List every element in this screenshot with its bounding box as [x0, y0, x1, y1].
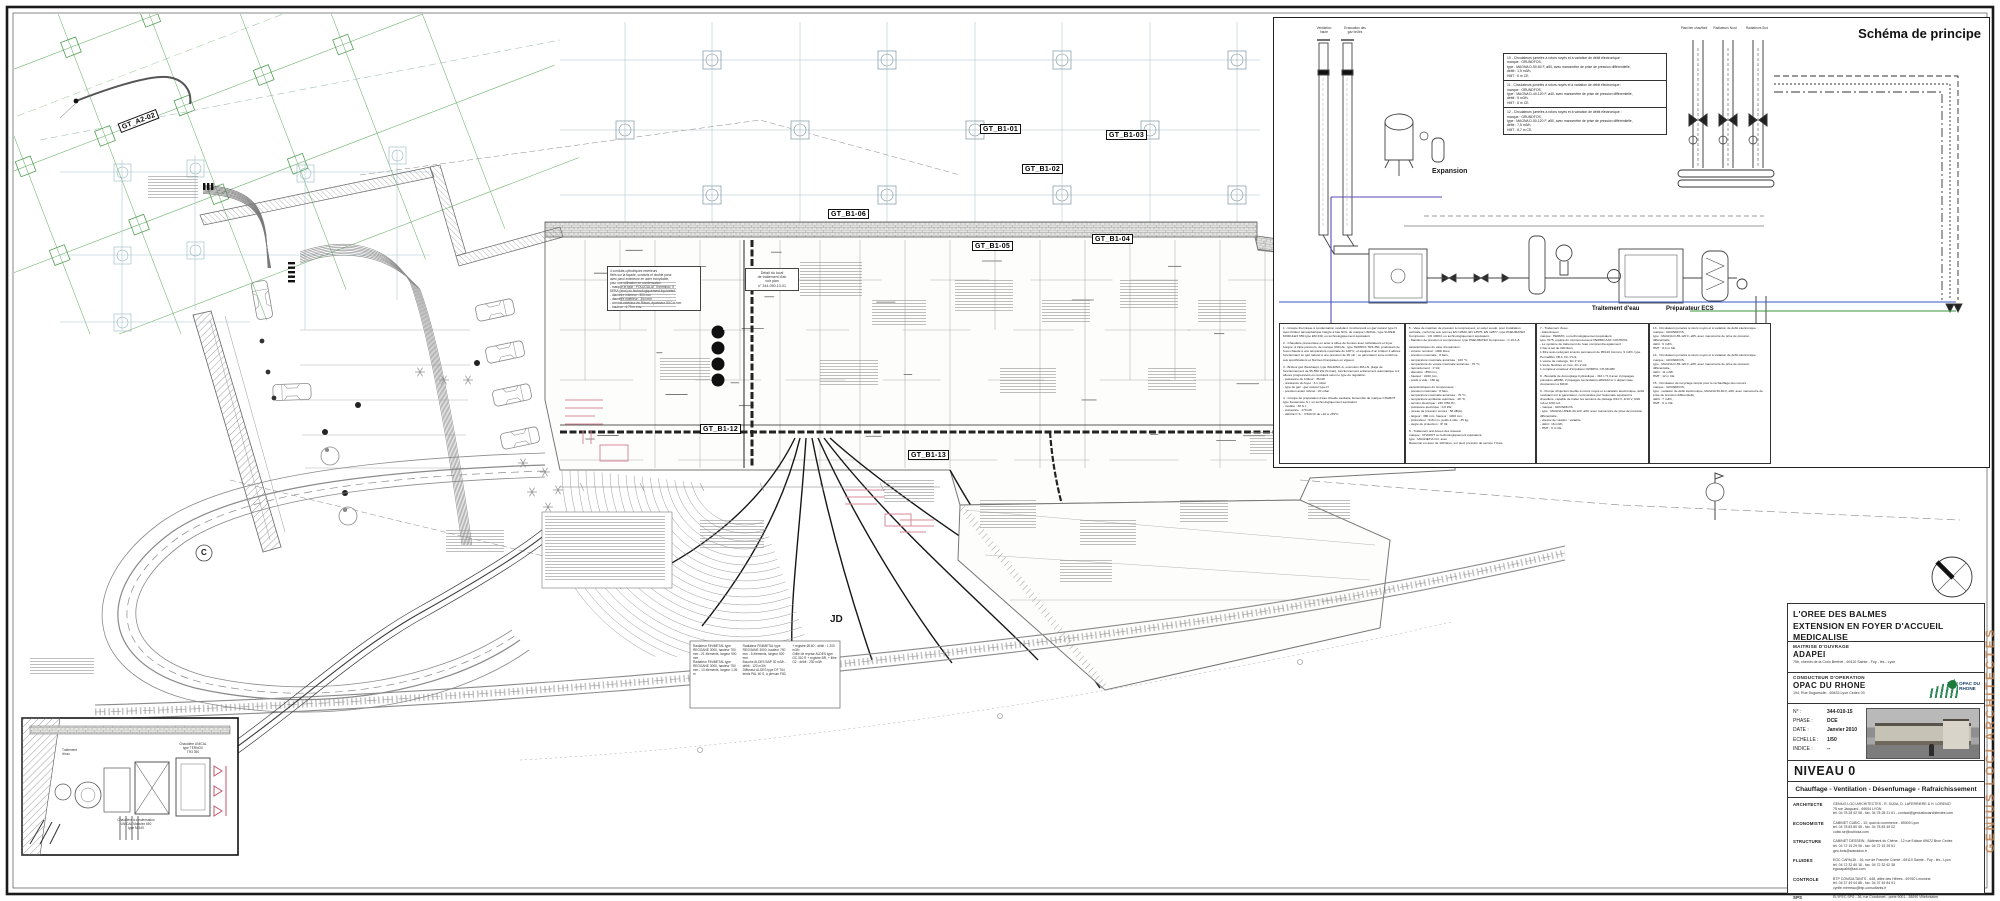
plan-label-gt-b1-12: GT_B1-12: [700, 424, 741, 434]
pump-note-12: 12 - Circulateurs jumelés à rotors noyés…: [1504, 108, 1666, 134]
plan-label-gt-b1-02: GT_B1-02: [1022, 164, 1063, 174]
meta-date-label: DATE :: [1793, 727, 1827, 733]
inset-water-label: Traitement d'eau: [62, 748, 92, 756]
annotation-cluster: [872, 300, 926, 326]
annotation-cluster: [1308, 500, 1350, 520]
annotation-cluster: [820, 360, 878, 386]
annotation-cluster: [446, 530, 504, 552]
meta-indice-value: --: [1827, 746, 1830, 752]
pump-note-11: 11 - Circulateurs jumelés à rotors noyés…: [1504, 81, 1666, 108]
preparateur-ecs-label: Préparateur ECS: [1666, 306, 1714, 312]
north-compass-icon: [1932, 557, 1972, 597]
legend-column-3: 7 - Traitement d'eau - Adoucisseur marqu…: [1536, 323, 1649, 464]
annotation-cluster: [980, 500, 1036, 530]
traitement-eau-label: Traitement d'eau: [1592, 306, 1639, 312]
structural-grid-main: [560, 22, 1260, 240]
annotation-cluster: [1000, 368, 1056, 394]
contributors-section: ARCHITECTEGENIUS LOCI ARCHITECTES - R. S…: [1788, 798, 1984, 901]
annotation-cluster: [700, 520, 764, 550]
detail-note-box: Détail du local de traitement d'air voir…: [745, 268, 799, 291]
contrib-role-controle: CONTROLE: [1793, 877, 1833, 891]
plan-label-gt-b1-06: GT_B1-06: [828, 209, 869, 219]
contrib-text-sps: ELYFEC SPS - 26, rue Condorcet - porte 9…: [1833, 895, 1979, 900]
contrib-role-structure: STRUCTURE: [1793, 839, 1833, 853]
annotation-cluster: [955, 280, 1013, 312]
legend-column-4: 13 - Circulateurs jumelés à rotors noyés…: [1649, 323, 1771, 464]
meta-photo-section: N° :344-010-15 PHASE :DCE DATE :Janvier …: [1788, 704, 1984, 761]
project-photo: [1866, 708, 1980, 759]
expansion-label: Expansion: [1432, 168, 1467, 175]
meta-date-value: Janvier 2010: [1827, 727, 1857, 733]
contrib-text-economiste: CABINET CUBIC - 13, quai du commerce - 6…: [1833, 821, 1979, 835]
contrib-text-controle: BTP CONSULTANTS - 648, allée des Hêtres …: [1833, 877, 1979, 891]
meta-phase-label: PHASE :: [1793, 718, 1827, 724]
watermark-text: GENIUS LOCI ARCHITECTES: [1983, 603, 1997, 883]
annotation-cluster: [1080, 520, 1136, 546]
pump-notes-box: 10 - Circulateurs jumelés à rotors noyés…: [1503, 53, 1667, 135]
annotation-cluster: [545, 516, 665, 582]
drawing-sheet: GT_A2-02 GT_B1-01 GT_B1-02 GT_B1-03 GT_B…: [0, 0, 2000, 901]
meta-num-value: 344-010-15: [1827, 709, 1853, 715]
annotation-cluster: [1060, 560, 1112, 584]
plan-label-gt-b1-01: GT_B1-01: [980, 124, 1021, 134]
meta-phase-value: DCE: [1827, 718, 1838, 724]
annotation-cluster: [800, 262, 862, 296]
riser2-label: Radiateurs Nord: [1710, 26, 1740, 30]
inset-boiler1-label: Chaudière UNICAL type TERNOX TR3 350: [172, 742, 214, 754]
annotation-cluster: [1120, 280, 1178, 310]
annotation-cluster: [1180, 500, 1228, 522]
annotation-cluster: [660, 358, 710, 380]
contrib-role-fluides: FLUIDES: [1793, 858, 1833, 872]
plan-label-c: C: [201, 548, 207, 557]
project-title-line2: EXTENSION EN FOYER D'ACCUEIL MEDICALISE: [1793, 621, 1979, 644]
opac-logo-dot-icon: [1948, 680, 1957, 689]
maitrise-address: 75b, chemin de la Croix Berthet - 69110 …: [1793, 660, 1979, 664]
annotation-cluster: [1042, 300, 1090, 324]
maitrise-label: MAITRISE D'OUVRAGE: [1793, 644, 1979, 649]
contrib-role-architecte: ARCHITECTE: [1793, 802, 1833, 816]
riser3-label: Radiateurs Sud: [1742, 26, 1772, 30]
pump-note-10: 10 - Circulateurs jumelés à rotors noyés…: [1504, 54, 1666, 81]
riser1-label: Plancher chauffant: [1678, 26, 1710, 30]
architect-watermark: GENIUS LOCI ARCHITECTES: [1969, 603, 1999, 894]
meta-echelle-value: 1/50: [1827, 737, 1837, 743]
contrib-role-economiste: ECONOMISTE: [1793, 821, 1833, 835]
contrib-text-fluides: EGC CAPALDI - 16, rue de Franche Comté -…: [1833, 858, 1979, 872]
legend-column-2: 5 - Vase de maintien de pression à compr…: [1405, 323, 1536, 464]
project-title: L'OREE DES BALMES EXTENSION EN FOYER D'A…: [1788, 604, 1984, 642]
radiator-legend-list: Radiateur FINIMETAL type REGGANE 3000, h…: [693, 644, 838, 706]
annotation-cluster: [1198, 300, 1246, 324]
conducteur-section: CONDUCTEUR D'OPERATION OPAC DU RHONE 194…: [1788, 673, 1984, 704]
meta-indice-label: INDICE :: [1793, 746, 1827, 752]
schema-de-principe-panel: Schéma de principe: [1273, 17, 1990, 468]
drawing-subtitle: Chauffage - Ventilation - Désenfumage - …: [1788, 782, 1984, 798]
contrib-text-architecte: GENIUS LOCI ARCHITECTES - R. SUDA, D. LA…: [1833, 802, 1979, 816]
plan-label-jd: JD: [830, 614, 843, 625]
chimney1-label: Ventilation haute: [1310, 26, 1338, 34]
annotation-cluster: [1148, 368, 1196, 390]
contrib-text-structure: CABINET DESSEIN - Bâtiment du Chêne - 12…: [1833, 839, 1979, 853]
annotation-cluster: [620, 282, 676, 308]
photo-building-2: [1943, 719, 1969, 749]
legend-column-1: 1 - Groupe thermique à condensation modu…: [1279, 323, 1405, 464]
inset-boiler2-label: Chaudière à condensation UNICAL Modulex …: [106, 818, 166, 830]
parking-area: [193, 165, 563, 561]
annotation-cluster: [30, 658, 94, 674]
plan-label-gt-b1-05: GT_B1-05: [972, 241, 1013, 251]
annotation-cluster: [884, 480, 934, 502]
plan-label-gt-b1-03: GT_B1-03: [1106, 130, 1147, 140]
plan-label-gt-b1-13: GT_B1-13: [908, 450, 949, 460]
photo-person: [1929, 744, 1934, 756]
annotation-cluster: [148, 176, 198, 200]
chimney2-label: Evacuation des gaz brûlés: [1338, 26, 1372, 34]
drawing-level: NIVEAU 0: [1788, 761, 1984, 782]
boiler-room-inset: [22, 718, 238, 855]
project-title-line1: L'OREE DES BALMES: [1793, 609, 1979, 621]
maitrise-section: MAITRISE D'OUVRAGE ADAPEI 75b, chemin de…: [1788, 642, 1984, 673]
title-block: L'OREE DES BALMES EXTENSION EN FOYER D'A…: [1787, 603, 1985, 894]
contrib-role-sps: SPS: [1793, 895, 1833, 900]
maitrise-name: ADAPEI: [1793, 650, 1979, 659]
plan-label-gt-b1-04: GT_B1-04: [1092, 234, 1133, 244]
meta-echelle-label: ECHELLE :: [1793, 737, 1827, 743]
meta-num-label: N° :: [1793, 709, 1827, 715]
schema-legend: 1 - Groupe thermique à condensation modu…: [1279, 323, 1771, 464]
